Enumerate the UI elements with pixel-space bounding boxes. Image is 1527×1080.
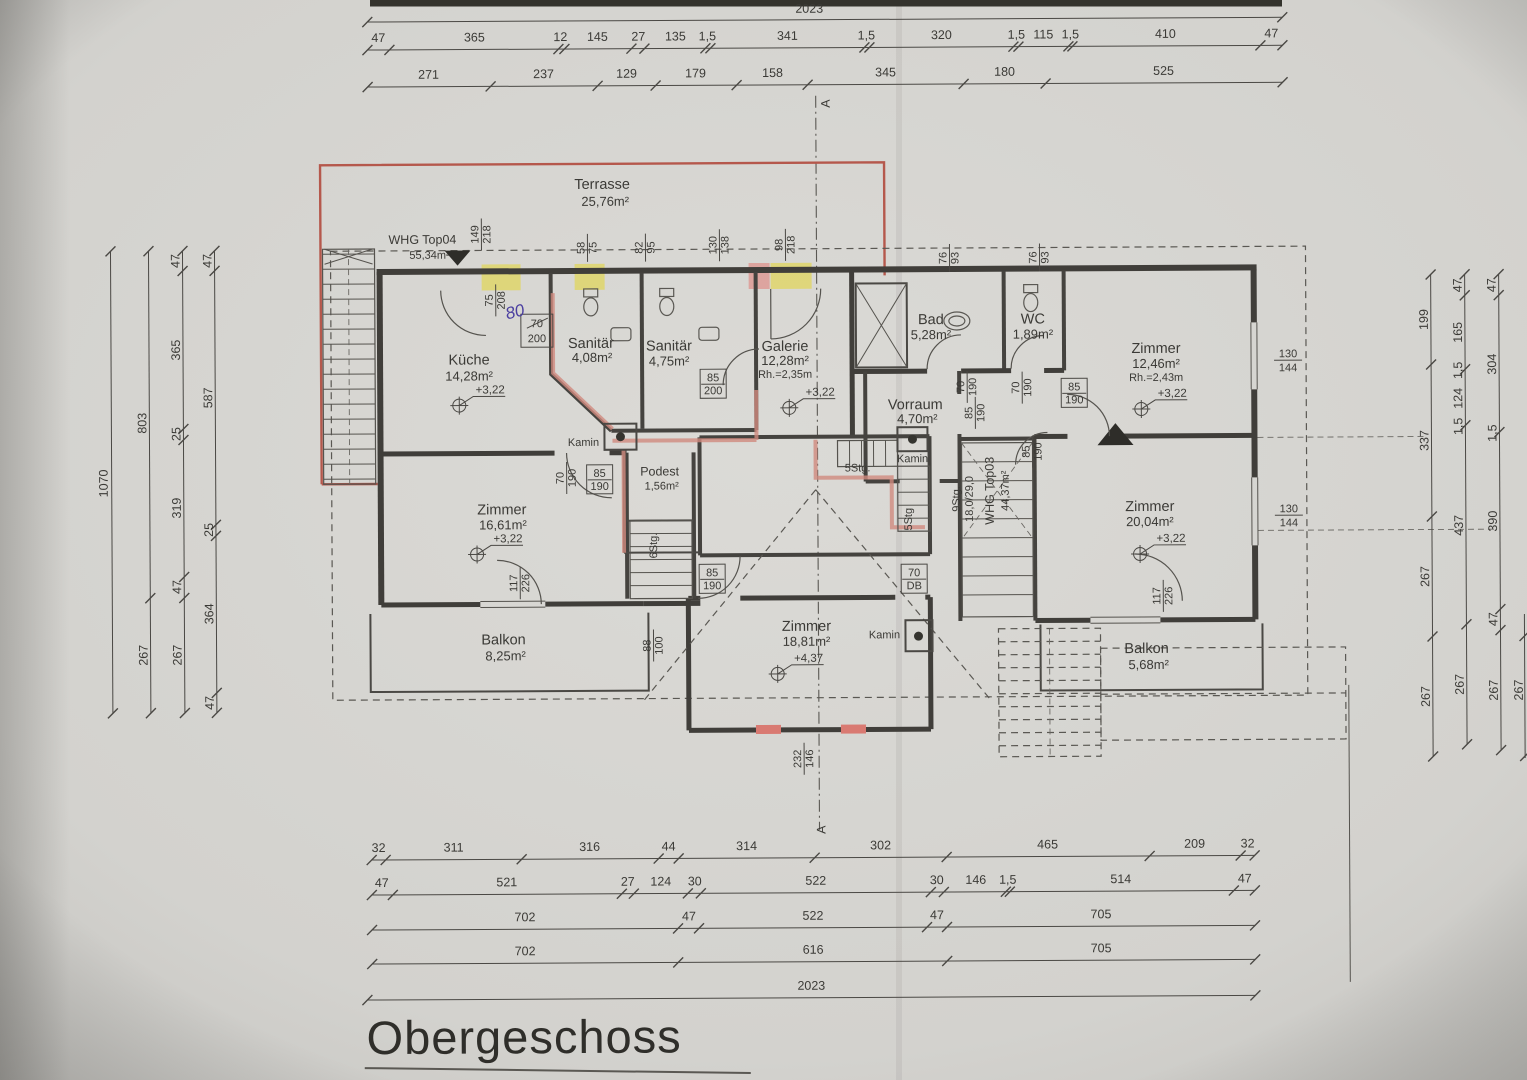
photo-vignette <box>0 0 1527 1080</box>
floorplan-drawing: 2023 47 365 12 145 27 135 1,5 341 1,5 32… <box>0 0 1527 1080</box>
scanned-floorplan-photo: 2023 47 365 12 145 27 135 1,5 341 1,5 32… <box>0 0 1527 1080</box>
